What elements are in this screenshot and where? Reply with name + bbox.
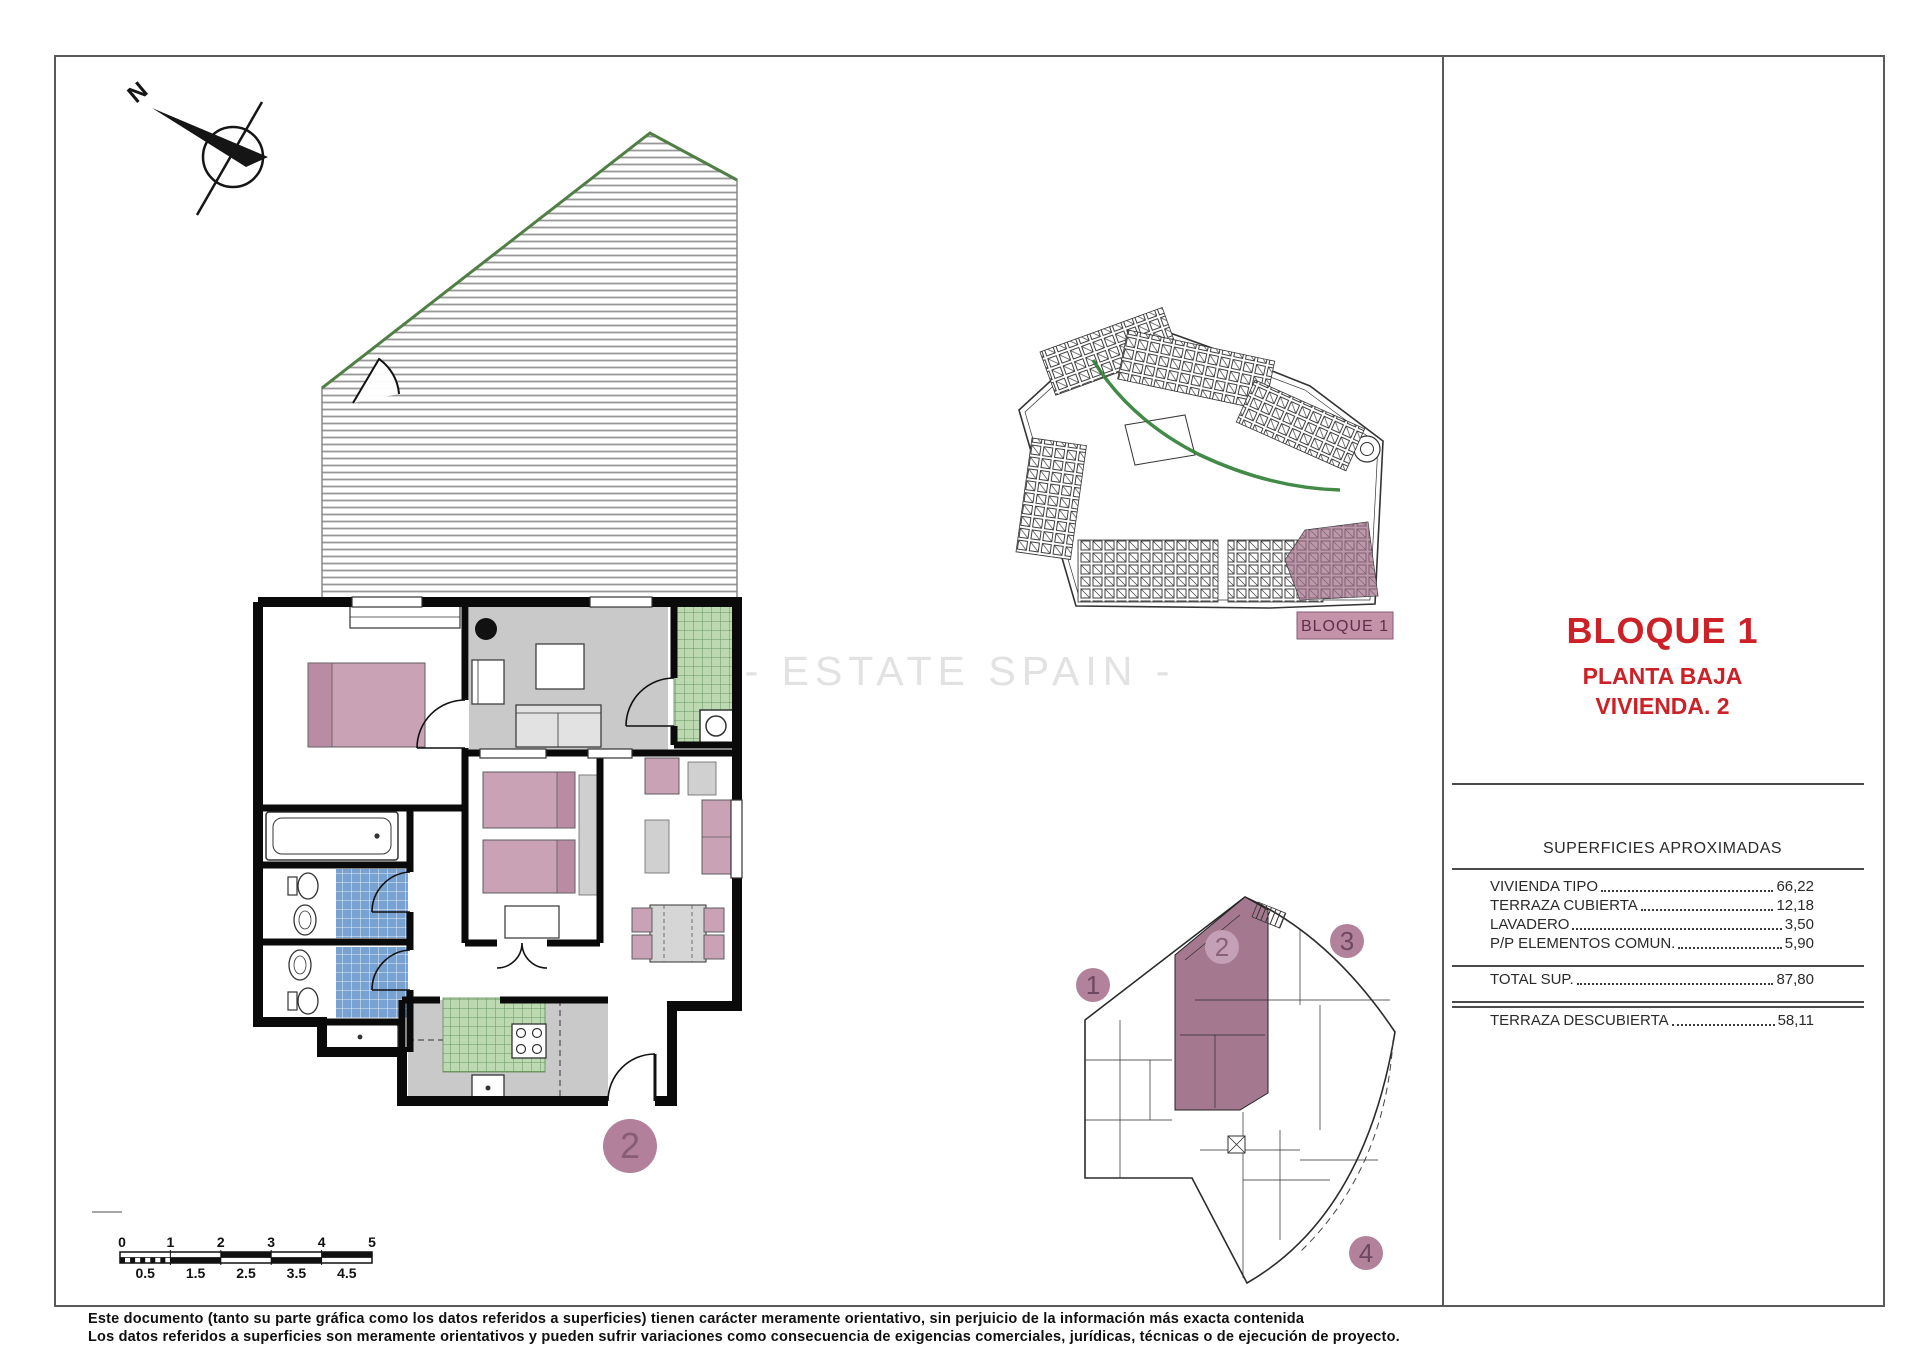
- extra-value: 58,11: [1778, 1012, 1814, 1029]
- leader-dots: [1672, 1024, 1775, 1026]
- surface-row: P/P ELEMENTOS COMUN. 5,90: [1490, 935, 1814, 952]
- svg-text:3: 3: [267, 1234, 275, 1250]
- extra-label: TERRAZA DESCUBIERTA: [1490, 1012, 1669, 1029]
- stove: [512, 1024, 546, 1058]
- tv-unit: [472, 660, 504, 704]
- plan-sheet: N: [0, 0, 1920, 1352]
- total-value: 87,80: [1776, 971, 1814, 988]
- surface-label: TERRAZA CUBIERTA: [1490, 897, 1638, 914]
- svg-text:0: 0: [118, 1234, 126, 1250]
- scale-bottom-labels: 0.5 1.5 2.5 3.5 4.5: [135, 1265, 356, 1281]
- rule: [1452, 868, 1864, 870]
- desk: [505, 906, 559, 938]
- svg-text:2: 2: [217, 1234, 225, 1250]
- leader-dots: [1601, 890, 1773, 892]
- site-plan: BLOQUE 1: [1016, 308, 1393, 639]
- north-arrow-icon: [152, 108, 268, 167]
- surface-label: VIVIENDA TIPO: [1490, 878, 1598, 895]
- site-block-label: BLOQUE 1: [1301, 618, 1389, 635]
- apartment-floorplan: 2: [258, 597, 742, 1173]
- scale-bar: 0 1 2 3 4 5: [92, 1212, 376, 1281]
- surface-value: 5,90: [1785, 935, 1814, 952]
- disclaimer-line-2: Los datos referidos a superficies son me…: [88, 1329, 1400, 1345]
- chair: [704, 908, 724, 932]
- svg-text:3.5: 3.5: [287, 1265, 307, 1281]
- key-unit-2-number: 2: [1215, 932, 1229, 962]
- north-label: N: [123, 77, 154, 109]
- sink: [289, 950, 311, 980]
- side-table: [688, 762, 716, 795]
- total-label: TOTAL SUP.: [1490, 971, 1574, 988]
- key-unit-1-number: 1: [1086, 970, 1100, 1000]
- sink: [294, 905, 316, 935]
- coffee-table: [536, 644, 584, 689]
- svg-text:2.5: 2.5: [236, 1265, 256, 1281]
- leader-dots: [1577, 983, 1774, 985]
- svg-text:4: 4: [318, 1234, 326, 1250]
- toilet: [298, 988, 318, 1014]
- surface-label: LAVADERO: [1490, 916, 1569, 933]
- page-title: BLOQUE 1: [1442, 610, 1883, 652]
- toilet: [298, 873, 318, 899]
- key-plan: 1 2 3 4: [1076, 897, 1395, 1283]
- uncovered-terrace-row: TERRAZA DESCUBIERTA 58,11: [1490, 1012, 1814, 1029]
- chair: [704, 935, 724, 959]
- double-rule: [1452, 1001, 1864, 1008]
- svg-text:1.5: 1.5: [186, 1265, 206, 1281]
- svg-text:0.5: 0.5: [135, 1265, 155, 1281]
- disclaimer-line-1: Este documento (tanto su parte gráfica c…: [88, 1311, 1304, 1327]
- column: [475, 618, 497, 640]
- armchair: [645, 758, 679, 794]
- key-unit-3-number: 3: [1340, 926, 1354, 956]
- subtitle-floor: PLANTA BAJA: [1442, 663, 1883, 690]
- surface-row: LAVADERO 3,50: [1490, 916, 1814, 933]
- surface-value: 12,18: [1776, 897, 1814, 914]
- total-row: TOTAL SUP. 87,80: [1490, 971, 1814, 988]
- rule: [1452, 783, 1864, 785]
- surface-row: TERRAZA CUBIERTA 12,18: [1490, 897, 1814, 914]
- svg-text:5: 5: [368, 1234, 376, 1250]
- chair: [632, 908, 652, 932]
- unit-badge-number: 2: [620, 1125, 640, 1166]
- surface-value: 66,22: [1776, 878, 1814, 895]
- surface-label: P/P ELEMENTOS COMUN.: [1490, 935, 1675, 952]
- leader-dots: [1641, 909, 1774, 911]
- rule: [1452, 965, 1864, 967]
- bathroom1-tiles: [336, 869, 408, 938]
- svg-text:4.5: 4.5: [337, 1265, 357, 1281]
- compass: N: [123, 77, 268, 215]
- svg-text:1: 1: [167, 1234, 175, 1250]
- surface-value: 3,50: [1785, 916, 1814, 933]
- wardrobe: [579, 775, 599, 895]
- chair: [632, 935, 652, 959]
- terrace: [322, 133, 737, 598]
- surfaces-heading: SUPERFICIES APROXIMADAS: [1442, 840, 1883, 858]
- key-plan-unit2-highlight: [1175, 897, 1268, 1110]
- leader-dots: [1572, 928, 1781, 930]
- surface-row: VIVIENDA TIPO 66,22: [1490, 878, 1814, 895]
- watermark: - ESTATE SPAIN -: [740, 648, 1180, 695]
- key-unit-4-number: 4: [1359, 1238, 1373, 1268]
- sofa: [516, 705, 601, 747]
- cabinet: [645, 820, 669, 873]
- scale-top-labels: 0 1 2 3 4 5: [118, 1234, 376, 1250]
- leader-dots: [1678, 947, 1781, 949]
- dining-table: [650, 905, 706, 962]
- title-panel: BLOQUE 1 PLANTA BAJA VIVIENDA. 2 SUPERFI…: [1442, 55, 1883, 1305]
- subtitle-unit: VIVIENDA. 2: [1442, 693, 1883, 720]
